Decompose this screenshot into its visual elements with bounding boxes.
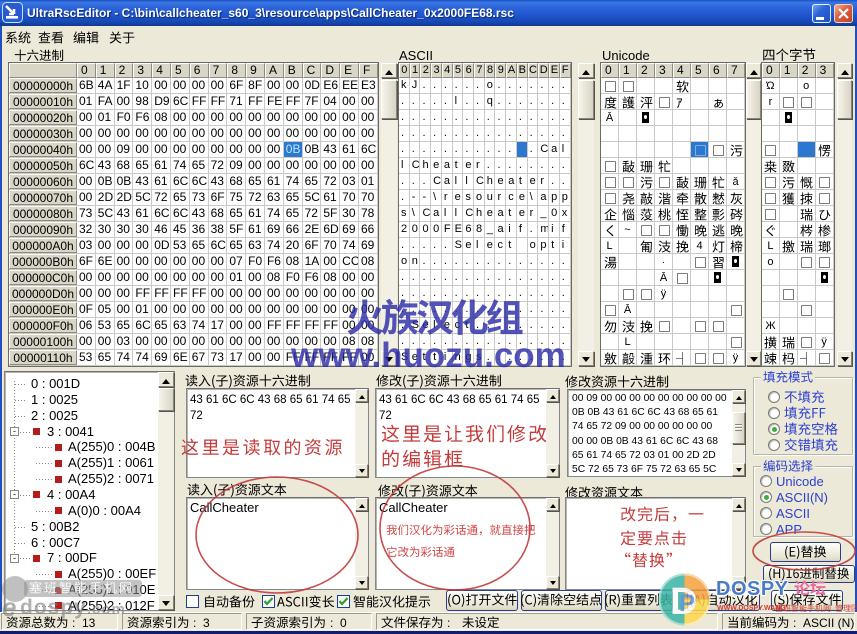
svg-text:P: P	[679, 590, 695, 617]
